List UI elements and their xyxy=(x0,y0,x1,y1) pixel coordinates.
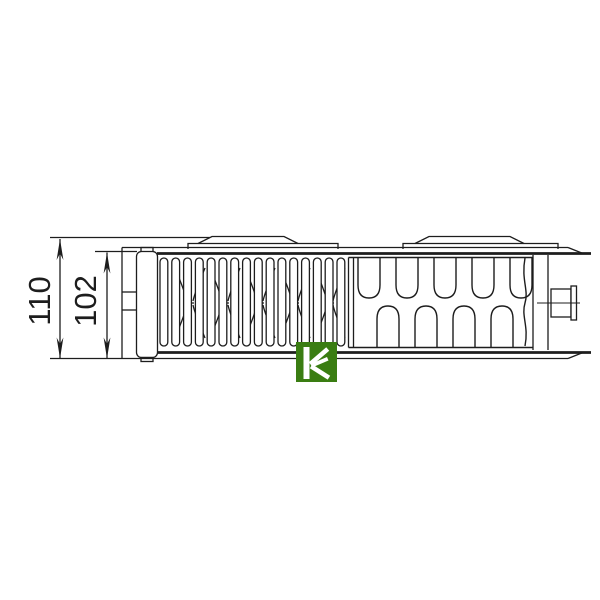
wave-section xyxy=(349,258,534,348)
fin xyxy=(278,258,286,346)
bottom-wave xyxy=(453,306,475,348)
fin xyxy=(160,258,168,346)
fin xyxy=(337,258,345,346)
convector-fins xyxy=(160,258,345,346)
top-wave xyxy=(358,258,380,299)
bottom-wave xyxy=(415,306,437,348)
fin xyxy=(313,258,321,346)
bottom-wave xyxy=(491,306,513,348)
top-wave xyxy=(396,258,418,299)
top-plate xyxy=(122,248,591,254)
fin xyxy=(302,258,310,346)
pipe-connection xyxy=(537,286,580,320)
fin xyxy=(266,258,274,346)
section-divider xyxy=(349,258,354,348)
bottom-waves xyxy=(377,306,513,348)
fin xyxy=(219,258,227,346)
bottom-wave xyxy=(377,306,399,348)
dimension-label-110: 110 xyxy=(22,276,57,325)
fin xyxy=(172,258,180,346)
top-wave xyxy=(510,258,532,299)
end-wavy-channel xyxy=(524,258,526,346)
fin xyxy=(290,258,298,346)
fin xyxy=(254,258,262,346)
brand-logo xyxy=(296,342,337,382)
top-wave xyxy=(434,258,456,299)
left-end-cap xyxy=(137,248,158,362)
dimension-label-102: 102 xyxy=(68,275,103,327)
fin xyxy=(231,258,239,346)
fin xyxy=(325,258,333,346)
radiator-technical-drawing: 110 102 xyxy=(0,0,600,600)
top-waves xyxy=(358,258,532,299)
top-wave xyxy=(472,258,494,299)
fin xyxy=(184,258,192,346)
fin xyxy=(195,258,203,346)
fin xyxy=(207,258,215,346)
fin xyxy=(243,258,251,346)
